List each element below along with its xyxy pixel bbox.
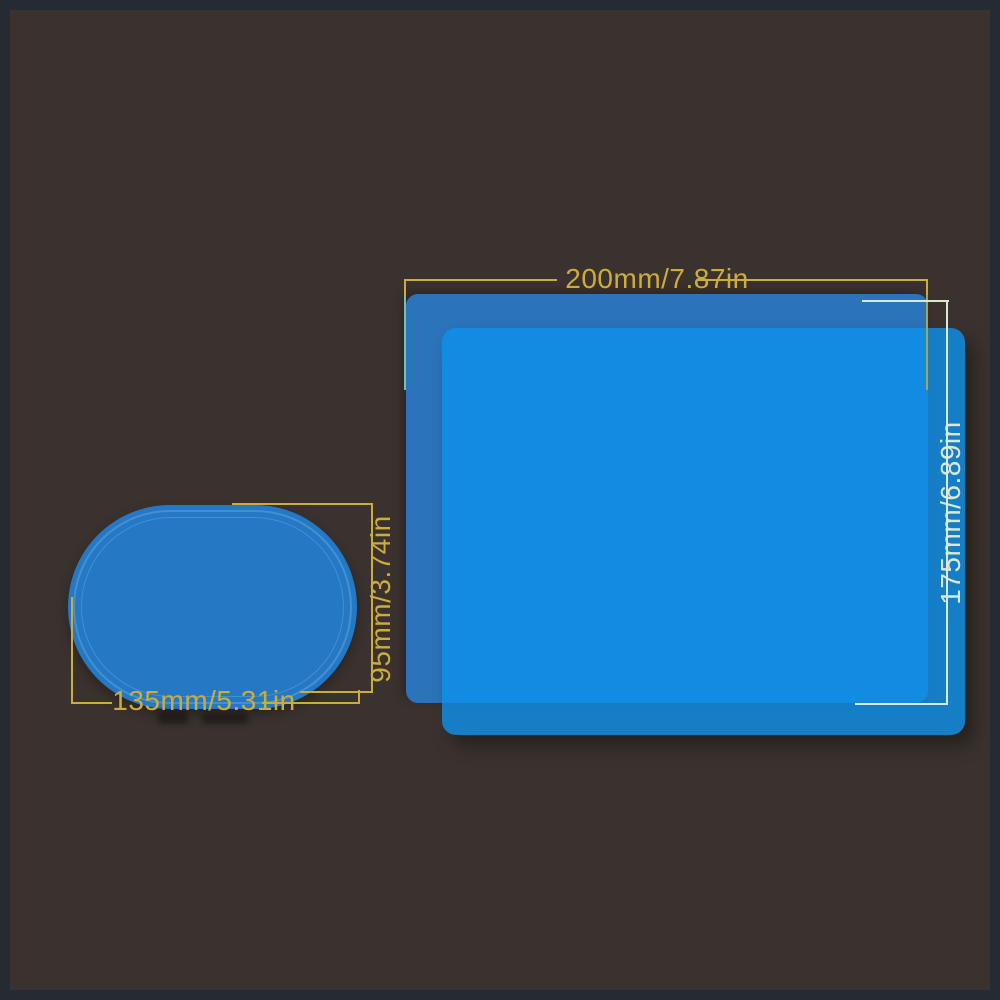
dim-tick-large-height-top <box>862 300 949 302</box>
dim-tick-large-height-bottom <box>855 703 948 705</box>
dim-tick-oval-width-right <box>358 690 360 704</box>
oval-inner-ring <box>81 517 344 697</box>
dim-label-large-height: 175mm/6.89in <box>936 421 966 604</box>
dim-tick-oval-height-top <box>232 503 373 505</box>
dim-tick-large-width-left-overfilm <box>404 295 406 390</box>
dim-label-oval-width: 135mm/5.31in <box>112 686 295 716</box>
product-dimension-diagram: 200mm/7.87in 175mm/6.89in 95mm/3.74in 13… <box>0 0 1000 1000</box>
dim-label-oval-height: 95mm/3.74in <box>366 515 396 682</box>
dim-tick-large-width-left <box>404 279 406 295</box>
dim-line-large-width-left <box>405 279 557 281</box>
dim-tick-large-width-right-overfilm <box>926 295 928 390</box>
dim-tick-oval-width-left <box>71 597 73 704</box>
film-oval <box>68 505 357 709</box>
oval-inner-ring <box>73 510 352 704</box>
dim-line-oval-width-left <box>72 702 112 704</box>
dim-tick-oval-height-bottom <box>300 691 373 693</box>
dim-tick-large-width-right <box>926 279 928 295</box>
film-rectangle-front <box>442 328 965 735</box>
dim-label-large-width: 200mm/7.87in <box>565 264 748 294</box>
